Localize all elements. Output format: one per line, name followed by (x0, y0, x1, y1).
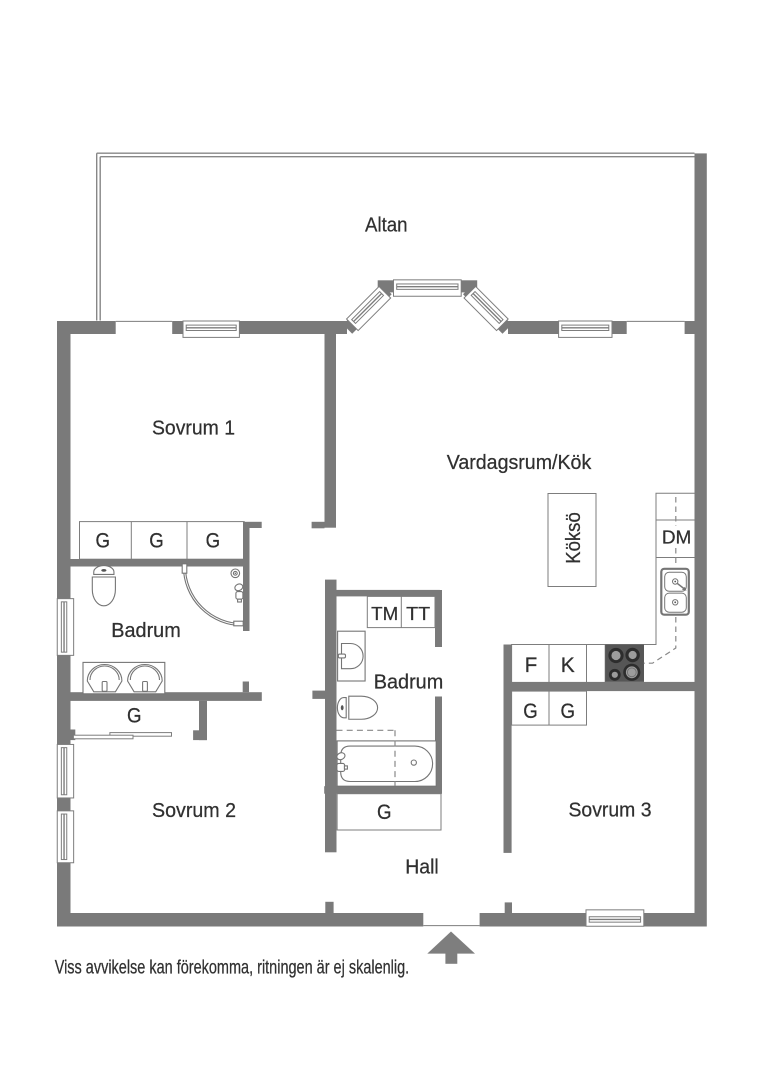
svg-text:TT: TT (406, 604, 430, 624)
svg-text:Viss avvikelse kan förekomma,: Viss avvikelse kan förekomma, ritningen … (55, 958, 410, 979)
svg-text:G: G (127, 705, 142, 728)
svg-text:Sovrum 2: Sovrum 2 (152, 799, 236, 822)
svg-text:G: G (149, 529, 164, 552)
svg-text:G: G (561, 700, 576, 723)
svg-text:G: G (377, 801, 392, 824)
svg-text:Badrum: Badrum (111, 619, 181, 642)
svg-text:Sovrum 3: Sovrum 3 (569, 799, 652, 822)
svg-text:G: G (523, 700, 538, 723)
svg-text:Altan: Altan (365, 213, 408, 236)
svg-text:DM: DM (662, 527, 692, 547)
svg-text:F: F (525, 654, 538, 677)
svg-text:G: G (206, 529, 221, 552)
svg-text:Vardagsrum/Kök: Vardagsrum/Kök (447, 451, 592, 474)
svg-text:Köksö: Köksö (562, 512, 585, 564)
svg-text:G: G (95, 529, 110, 552)
svg-text:K: K (561, 654, 575, 677)
svg-text:TM: TM (371, 604, 398, 624)
svg-text:Badrum: Badrum (374, 671, 444, 694)
svg-text:Hall: Hall (405, 856, 439, 879)
svg-text:Sovrum 1: Sovrum 1 (152, 417, 235, 440)
